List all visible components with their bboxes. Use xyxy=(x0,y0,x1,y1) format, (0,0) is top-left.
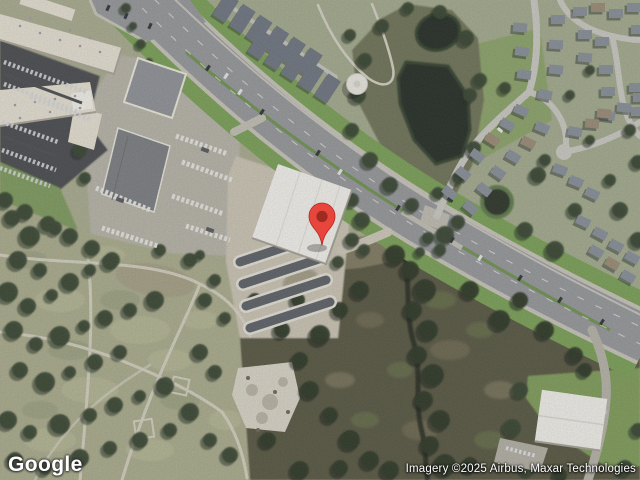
location-pin-icon[interactable] xyxy=(307,202,337,248)
google-logo[interactable]: Google xyxy=(8,453,83,477)
map-viewport[interactable]: Google Imagery ©2025 Airbus, Maxar Techn… xyxy=(0,0,640,480)
pin-body[interactable] xyxy=(309,203,335,246)
imagery-attribution: Imagery ©2025 Airbus, Maxar Technologies xyxy=(406,463,636,475)
pin-dot xyxy=(316,211,327,222)
